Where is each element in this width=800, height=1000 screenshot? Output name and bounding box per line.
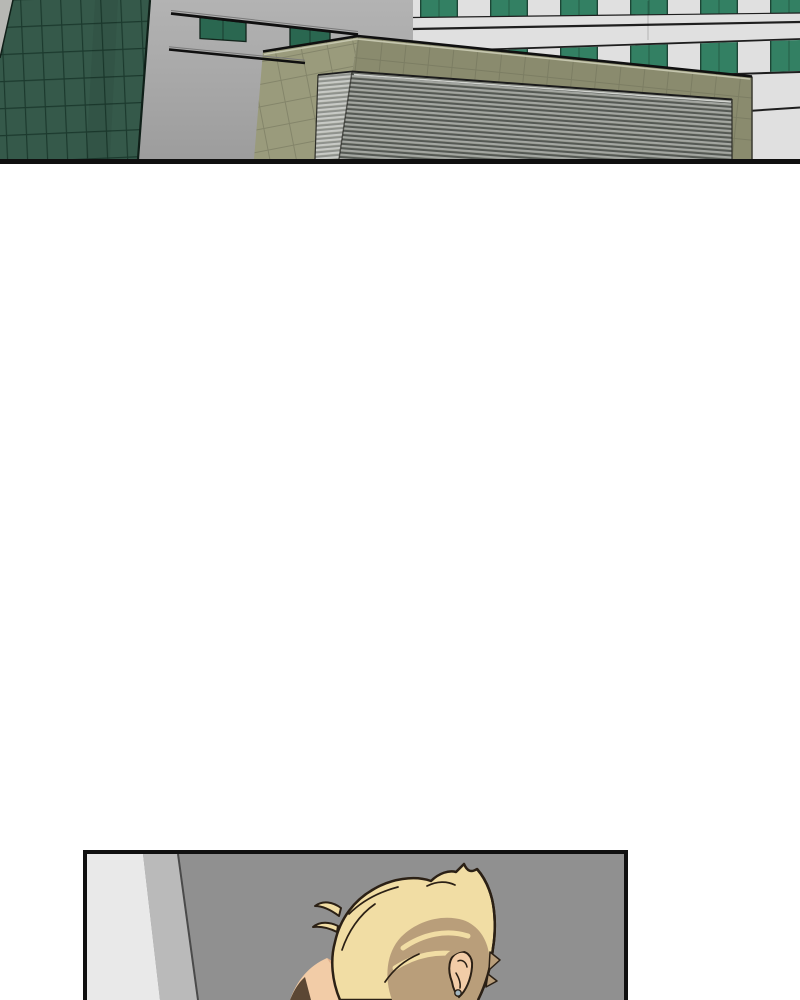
panel-character: [83, 850, 628, 1000]
panel-border: [0, 159, 800, 164]
earring-stud: [455, 990, 461, 996]
panel-building: [0, 0, 800, 164]
building-art: [0, 0, 800, 164]
comic-page: { "page": { "background": "#ffffff" }, "…: [0, 0, 800, 1000]
green-glass-tower: [0, 0, 150, 159]
tower-window-grid: [0, 0, 150, 159]
character-art: [83, 850, 628, 1000]
